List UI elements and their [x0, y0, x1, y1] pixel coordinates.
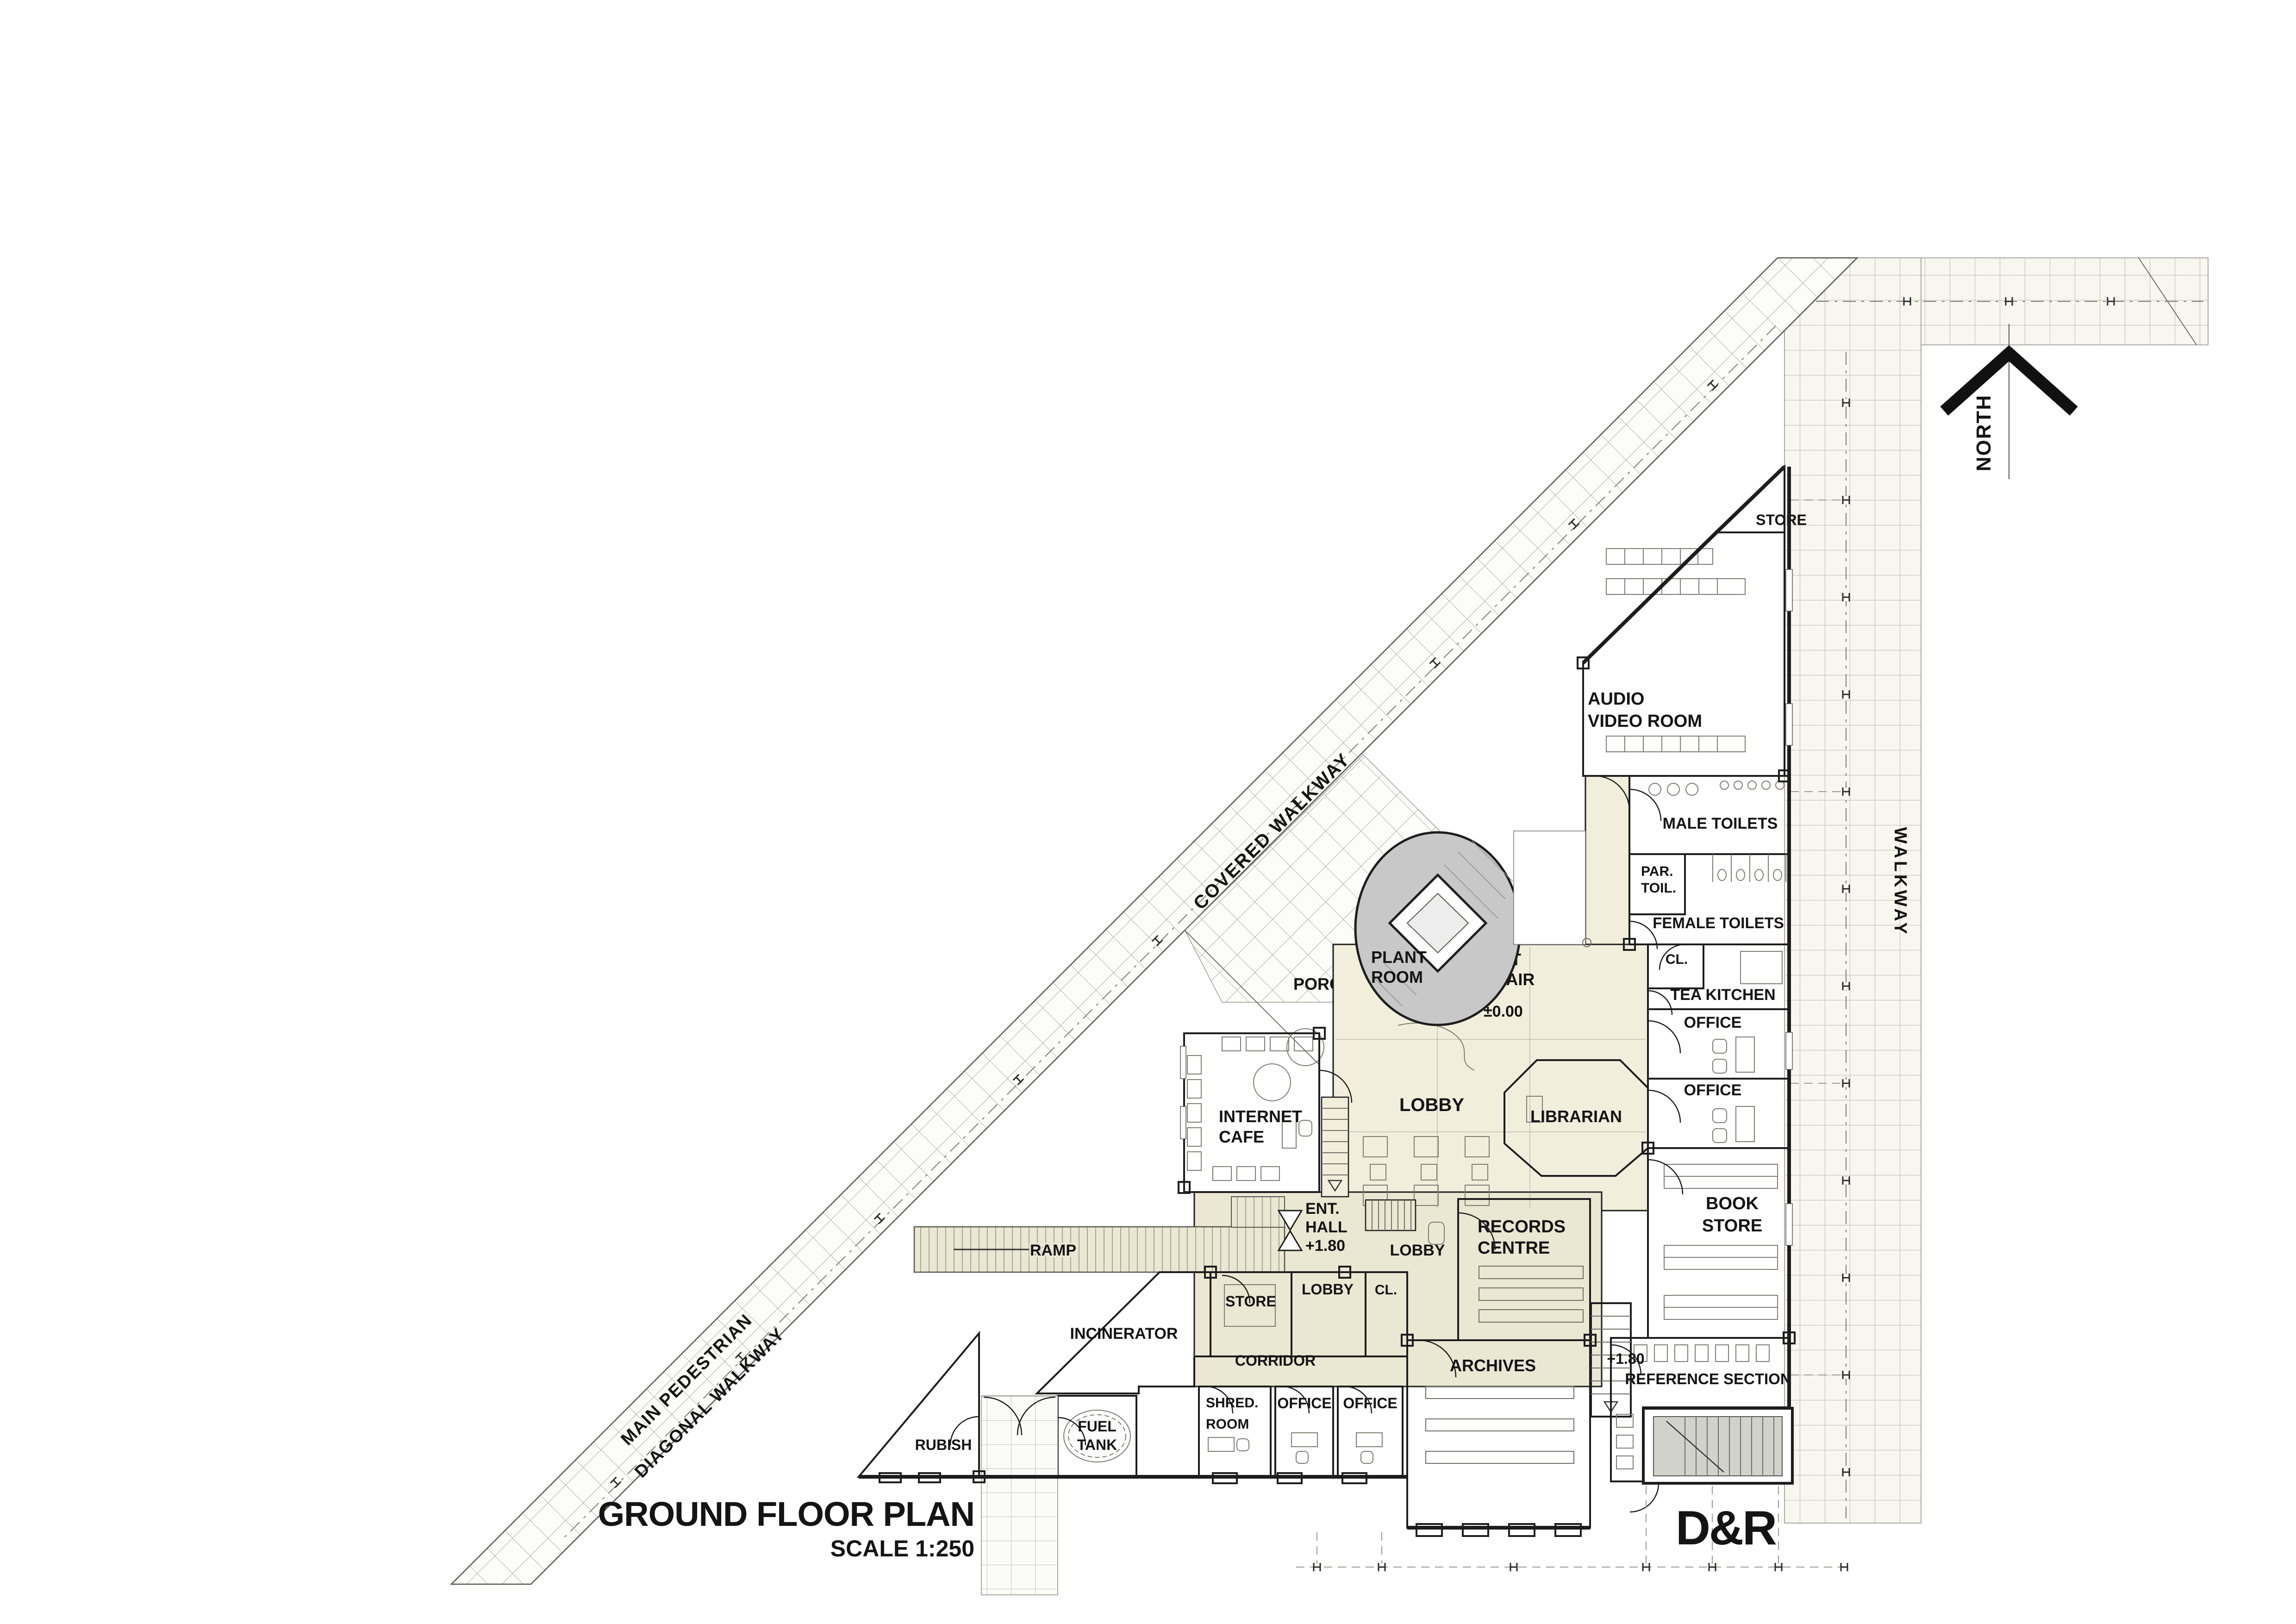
store-top-label: STORE — [1756, 512, 1807, 528]
incinerator-label: INCINERATOR — [1070, 1325, 1178, 1343]
ent-hall-label-2: HALL — [1305, 1218, 1348, 1236]
planter-circle — [1254, 1064, 1291, 1101]
room-audio-video — [1583, 532, 1784, 776]
side-walkway-label: WALKWAY — [1890, 827, 1910, 937]
shred-label-2: ROOM — [1206, 1417, 1249, 1432]
book-store-shelves — [1664, 1164, 1778, 1319]
lobby-lower-label: LOBBY — [1302, 1281, 1354, 1298]
female-toilets-label: FEMALE TOILETS — [1653, 914, 1784, 931]
par-toil-label-2: TOIL. — [1641, 881, 1676, 896]
records-label-2: CENTRE — [1478, 1238, 1550, 1258]
ent-hall-label-1: ENT. — [1305, 1200, 1340, 1218]
par-toil-label-1: PAR. — [1641, 864, 1673, 879]
male-toilet-fixtures — [1649, 781, 1784, 795]
book-store-label-1: BOOK — [1706, 1194, 1759, 1213]
room-internet-cafe: INTERNET CAFE — [1184, 1033, 1319, 1192]
fuel-label-1: FUEL — [1078, 1418, 1117, 1435]
female-toilet-fixtures — [1713, 854, 1786, 882]
north-label: NORTH — [1972, 394, 1995, 471]
plan-title: GROUND FLOOR PLAN — [598, 1495, 974, 1533]
tea-kitchen-label: TEA KITCHEN — [1670, 986, 1775, 1004]
reference-section-label: REFERENCE SECTION — [1625, 1370, 1791, 1387]
title-block: GROUND FLOOR PLAN SCALE 1:250 D&R — [598, 1495, 1776, 1562]
archives-pilasters — [1416, 1524, 1581, 1536]
librarian-label: LIBRARIAN — [1530, 1107, 1622, 1126]
book-store-label-2: STORE — [1702, 1216, 1762, 1236]
level-ground-label: ±0.00 — [1484, 1003, 1523, 1020]
plant-room-label-2: ROOM — [1371, 968, 1423, 987]
upper-corridor — [1585, 776, 1629, 944]
plant-room-label-1: PLANT — [1371, 948, 1427, 967]
stair-cafe-lobby — [1322, 1097, 1348, 1197]
internet-cafe-label-2: CAFE — [1219, 1127, 1264, 1146]
floor-plan-page: WALKWAY COVERED WALKWAY MAIN PEDESTRIAN … — [0, 0, 2296, 1624]
rubish-label: RUBISH — [915, 1437, 972, 1453]
archives-label: ARCHIVES — [1450, 1356, 1536, 1375]
stair-ent-lobby — [1366, 1200, 1416, 1230]
internet-cafe-label-1: INTERNET — [1219, 1107, 1302, 1126]
male-toilets-label: MALE TOILETS — [1663, 815, 1778, 832]
site-paving: WALKWAY — [1784, 258, 2208, 1523]
ramp-landing — [1231, 1197, 1285, 1227]
office-1-label: OFFICE — [1684, 1014, 1742, 1031]
fuel-label-2: TANK — [1077, 1437, 1117, 1453]
cl-upper-label: CL. — [1666, 952, 1688, 967]
audio-video-label-2: VIDEO ROOM — [1588, 712, 1702, 731]
plant-room: PLANT ROOM — [1355, 832, 1520, 1025]
stair-exit-block — [1630, 1408, 1792, 1512]
logo-text: D&R — [1676, 1501, 1776, 1555]
floor-plan-drawing: WALKWAY COVERED WALKWAY MAIN PEDESTRIAN … — [0, 0, 2296, 1624]
plan-scale: SCALE 1:250 — [830, 1536, 974, 1562]
service-path — [981, 1396, 1058, 1595]
room-rubish — [859, 1333, 979, 1477]
courtyard — [1514, 831, 1585, 944]
audio-video-label-1: AUDIO — [1588, 689, 1644, 709]
lobby-main-label: LOBBY — [1399, 1095, 1464, 1115]
office-2-label: OFFICE — [1684, 1081, 1742, 1099]
store-lower-label: STORE — [1225, 1293, 1276, 1310]
cl-lower-label: CL. — [1375, 1282, 1397, 1298]
tea-kitchen-counter — [1741, 951, 1782, 984]
corridor-label: CORRIDOR — [1235, 1352, 1316, 1369]
level-entrance-label: +1.80 — [1305, 1237, 1345, 1255]
ramp-label: RAMP — [1030, 1242, 1076, 1259]
north-arrow: NORTH — [1944, 324, 2074, 479]
